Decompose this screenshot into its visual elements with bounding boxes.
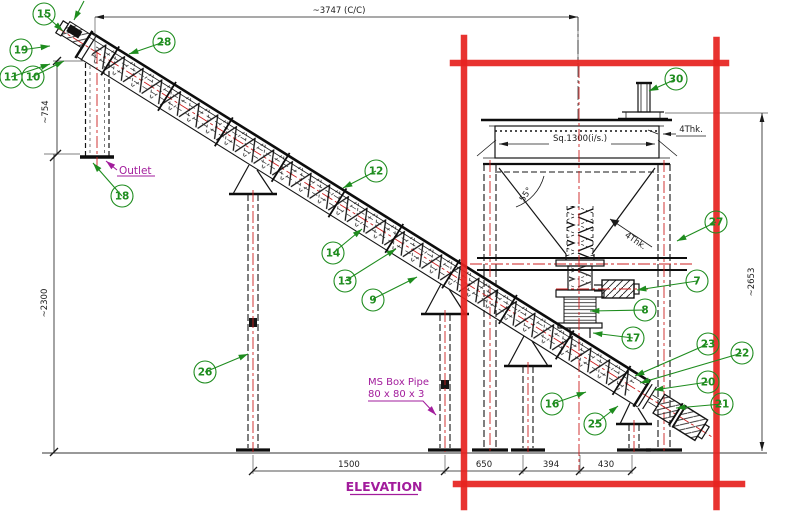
svg-text:~2300: ~2300 [40,289,50,318]
support-leg-1 [229,165,277,452]
svg-text:8: 8 [641,305,648,317]
box-pipe-label: MS Box Pipe 80 x 80 x 3 [368,377,436,415]
dimension-total-cc: ~3747 (C/C) [95,6,578,62]
balloon-12: 12 [365,160,387,182]
dimension-754: ~754 [41,57,84,158]
svg-text:4Thk.: 4Thk. [679,125,703,135]
svg-text:17: 17 [626,333,641,345]
svg-text:19: 19 [14,45,29,57]
screw-flights [88,41,638,397]
svg-text:21: 21 [715,399,730,411]
svg-text:430: 430 [598,460,614,470]
svg-text:10: 10 [26,72,41,84]
support-leg-tail [616,403,652,452]
balloon-30: 30 [665,68,687,90]
balloon-28: 28 [153,31,175,53]
svg-text:22: 22 [735,348,750,360]
outlet-label: Outlet [106,161,155,177]
balloon-13: 13 [334,270,356,292]
balloon-26: 26 [194,361,216,383]
svg-text:12: 12 [369,166,384,178]
svg-text:16: 16 [545,399,560,411]
svg-text:ELEVATION: ELEVATION [346,479,423,494]
svg-text:11: 11 [4,72,19,84]
balloon-11: 11 [0,66,22,88]
discharge-stack [556,254,604,338]
dimension-sq1300: Sq.1300(i/s.) [499,134,655,146]
dimension-bottom-chain: 1500 650 394 430 [249,455,636,475]
svg-text:20: 20 [701,377,716,389]
vertical-screw [567,206,593,258]
balloon-21: 21 [711,393,733,415]
svg-text:650: 650 [476,460,492,470]
tail-drive [633,380,714,447]
flex-bellows [564,297,596,323]
svg-text:7: 7 [693,276,700,288]
svg-text:Outlet: Outlet [119,165,152,177]
balloon-16: 16 [541,393,563,415]
cone-angle-label: 55° [518,186,535,204]
balloon-7: 7 [686,270,708,292]
svg-text:9: 9 [369,295,376,307]
balloon-15: 15 [33,3,55,25]
svg-text:394: 394 [543,460,559,470]
svg-text:MS Box Pipe: MS Box Pipe [368,377,429,388]
dimension-2300: ~2300 [40,153,58,456]
svg-text:30: 30 [669,74,684,86]
svg-text:15: 15 [37,9,52,21]
balloon-17: 17 [622,327,644,349]
support-leg-3 [504,336,552,452]
balloon-18: 18 [111,185,133,207]
svg-text:~754: ~754 [41,100,51,123]
svg-text:26: 26 [198,367,213,379]
svg-text:4Thk.: 4Thk. [623,231,648,253]
svg-text:18: 18 [115,191,130,203]
drawing-canvas: ~3747 (C/C) ~754 ~2300 ~2653 Sq.1300(i/s… [0,0,803,513]
svg-text:25: 25 [588,419,603,431]
balloon-19: 19 [10,39,32,61]
svg-text:13: 13 [338,276,353,288]
view-title: ELEVATION [346,479,423,495]
balloon-14: 14 [322,242,344,264]
engineering-drawing-elevation: ~3747 (C/C) ~754 ~2300 ~2653 Sq.1300(i/s… [0,0,803,513]
svg-text:23: 23 [701,339,716,351]
svg-text:1500: 1500 [338,460,360,470]
svg-text:80 x 80 x 3: 80 x 80 x 3 [368,389,424,400]
svg-text:~3747 (C/C): ~3747 (C/C) [313,6,366,16]
svg-text:~2653: ~2653 [747,268,757,297]
svg-text:28: 28 [157,37,172,49]
svg-text:Sq.1300(i/s.): Sq.1300(i/s.) [553,134,607,144]
balloon-9: 9 [362,289,384,311]
balloon-22: 22 [731,342,753,364]
dimension-4thk-cone: 4Thk. [610,219,652,252]
hopper-post [618,83,668,119]
svg-text:27: 27 [709,217,724,229]
svg-text:14: 14 [326,248,341,260]
balloon-25: 25 [584,413,606,435]
